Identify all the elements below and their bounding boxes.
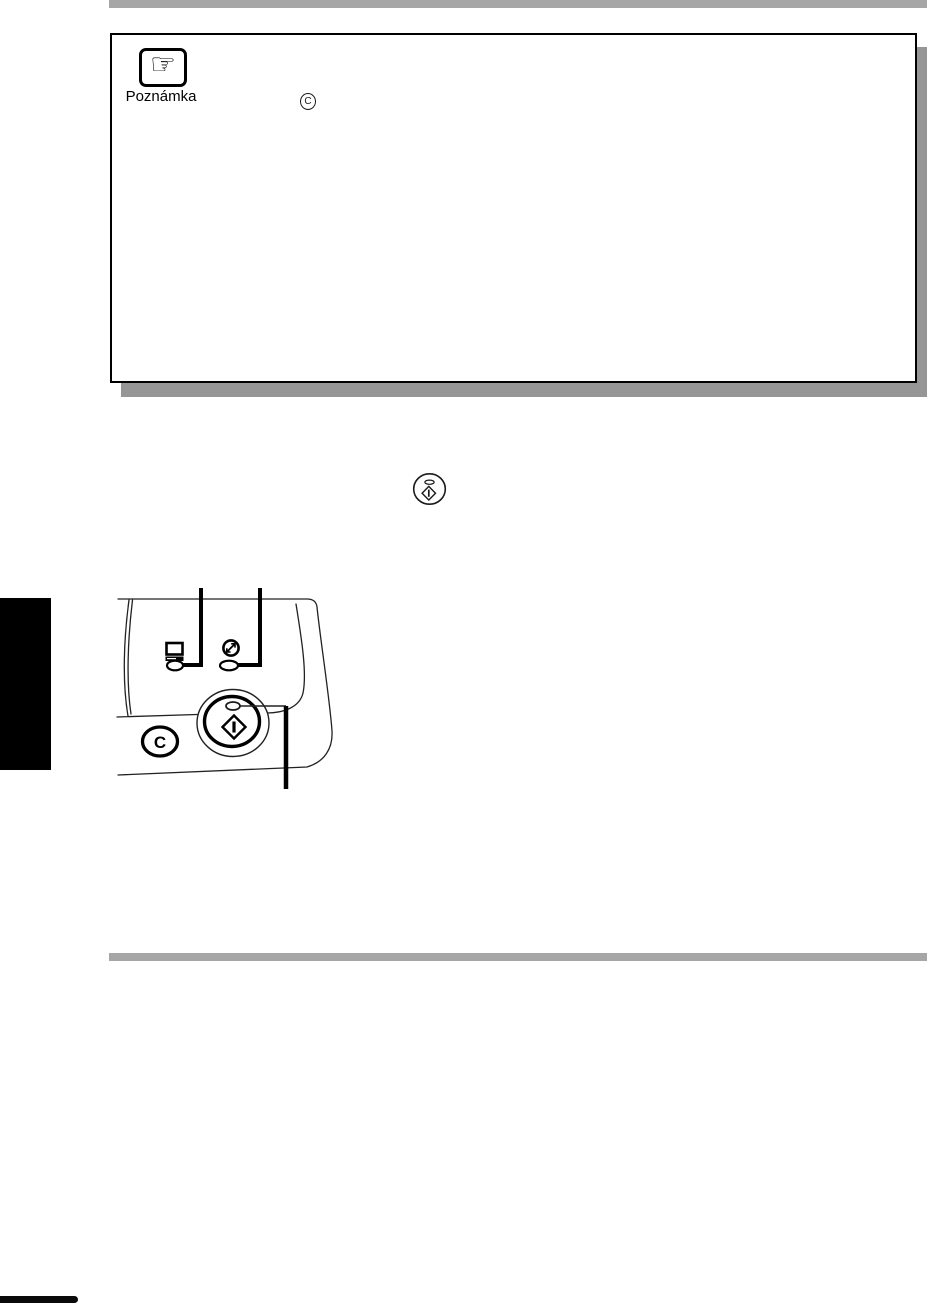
energy-save-indicator-icon [223, 640, 238, 655]
note-label: Poznámka [118, 88, 204, 105]
clear-button-letter: C [154, 733, 166, 752]
manual-page: ☞ Poznámka C [0, 0, 927, 1304]
section-divider-bar [109, 953, 927, 961]
pointing-hand-glyph: ☞ [150, 51, 176, 80]
energy-save-indicator-lamp [220, 661, 238, 671]
clear-key-letter: C [304, 97, 311, 107]
start-button [197, 690, 286, 757]
chapter-tab [0, 598, 51, 770]
panel-inner-curve [267, 604, 304, 713]
note-box: ☞ Poznámka C [110, 33, 917, 383]
panel-mid-line [117, 715, 197, 718]
clear-key-circle-icon: C [300, 93, 316, 110]
footer-page-mark [0, 1296, 78, 1303]
start-key-icon [412, 472, 448, 506]
start-key-lamp [425, 480, 434, 484]
data-indicator-lamp [167, 661, 183, 671]
clear-button: C [143, 727, 178, 756]
pointing-hand-icon: ☞ [139, 48, 187, 87]
panel-left-edge-inner [128, 600, 132, 714]
control-panel-diagram: C [100, 585, 340, 793]
top-section-bar [109, 0, 927, 8]
start-lamp [226, 702, 240, 710]
data-indicator-icon [166, 643, 184, 661]
